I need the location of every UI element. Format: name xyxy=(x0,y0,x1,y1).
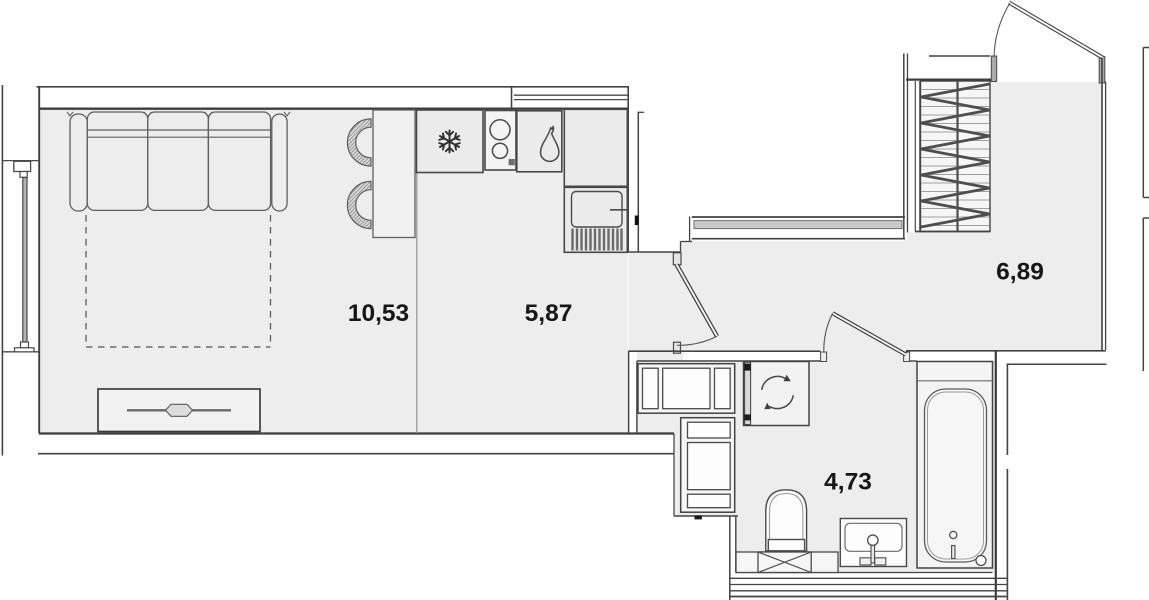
svg-text:10,53: 10,53 xyxy=(348,300,409,327)
svg-text:5,87: 5,87 xyxy=(525,300,573,327)
svg-text:6,89: 6,89 xyxy=(996,259,1044,286)
svg-text:4,73: 4,73 xyxy=(824,469,872,496)
